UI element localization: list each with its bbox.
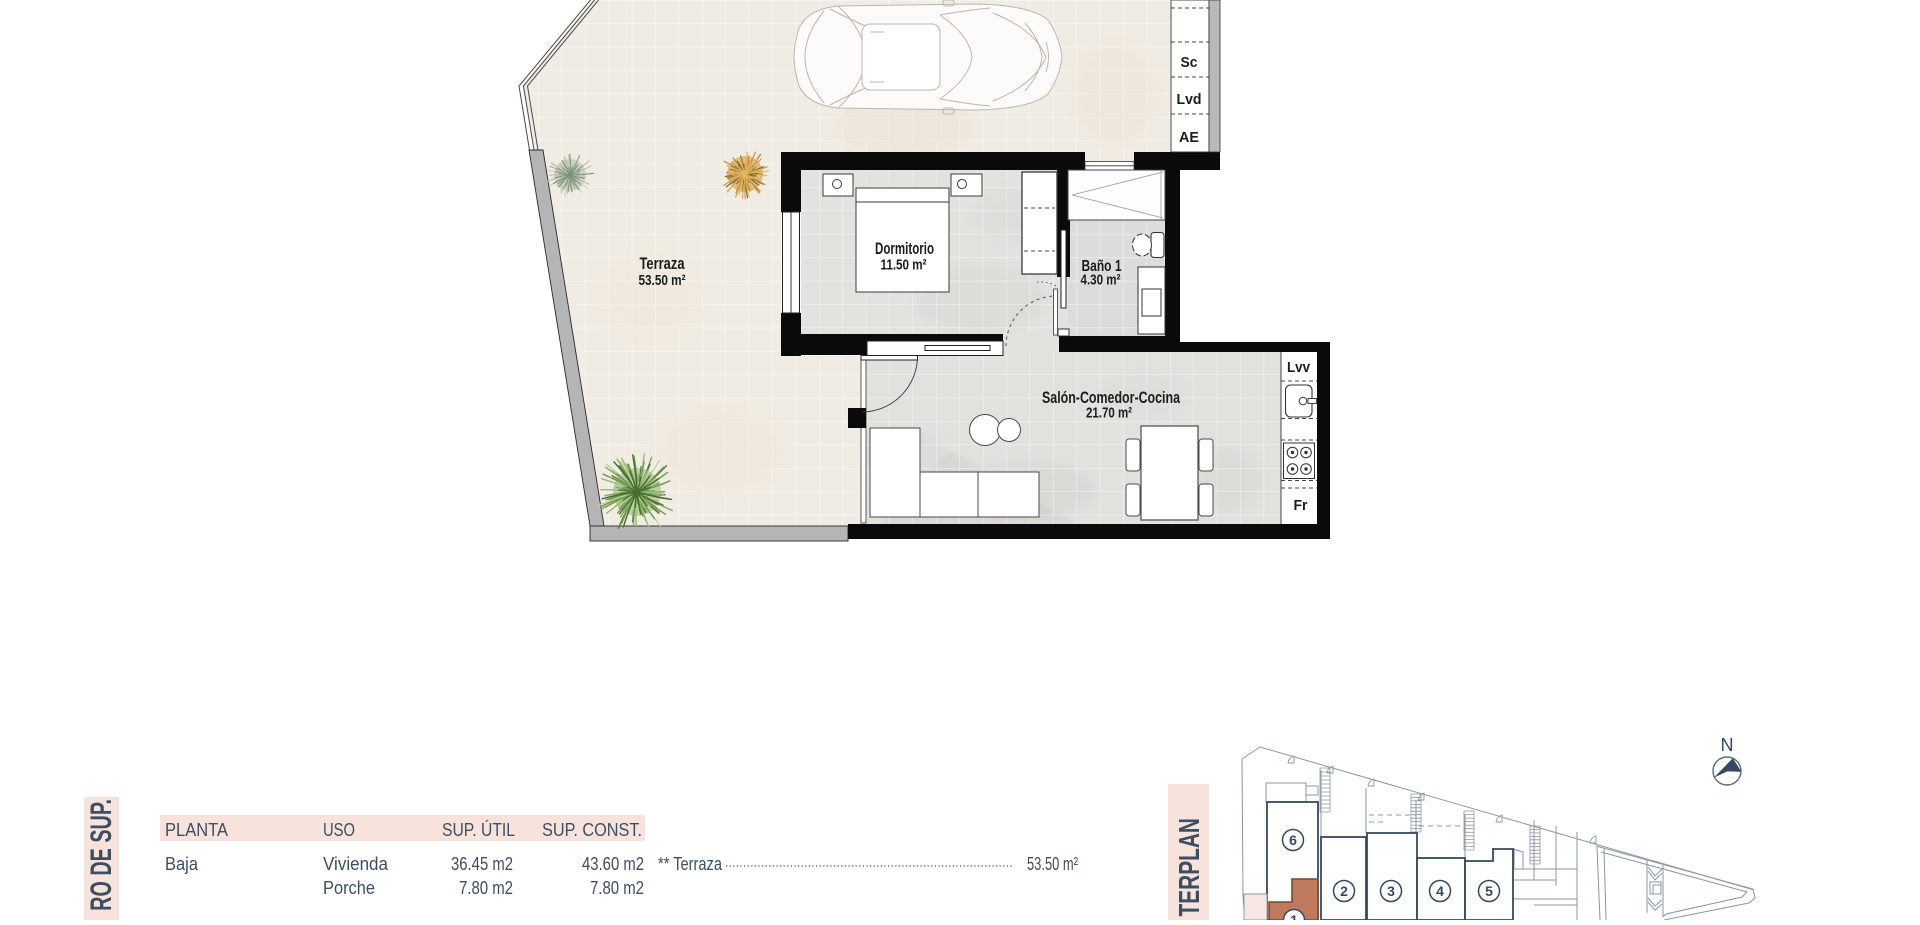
svg-text:4.30 m²: 4.30 m² bbox=[1081, 272, 1121, 289]
svg-text:AE: AE bbox=[1179, 129, 1199, 146]
svg-text:Lvv: Lvv bbox=[1287, 359, 1311, 376]
svg-text:4: 4 bbox=[1436, 883, 1444, 899]
svg-text:Sc: Sc bbox=[1181, 54, 1198, 71]
svg-text:6: 6 bbox=[1289, 832, 1297, 848]
svg-text:Porche: Porche bbox=[323, 877, 375, 898]
svg-text:11.50 m²: 11.50 m² bbox=[881, 257, 927, 274]
svg-text:3: 3 bbox=[1387, 883, 1395, 899]
svg-text:53.50 m²: 53.50 m² bbox=[639, 272, 686, 289]
svg-text:Terraza: Terraza bbox=[640, 254, 685, 273]
svg-text:5: 5 bbox=[1485, 883, 1493, 899]
svg-text:21.70 m²: 21.70 m² bbox=[1086, 405, 1132, 422]
svg-text:** Terraza: ** Terraza bbox=[658, 853, 723, 874]
svg-text:Dormitorio: Dormitorio bbox=[875, 240, 934, 258]
svg-text:36.45 m2: 36.45 m2 bbox=[451, 853, 513, 874]
svg-text:N: N bbox=[1721, 735, 1734, 755]
svg-text:Baja: Baja bbox=[165, 853, 199, 874]
svg-text:43.60 m2: 43.60 m2 bbox=[582, 853, 644, 874]
svg-text:Vivienda: Vivienda bbox=[323, 853, 389, 874]
svg-text:SUP. ÚTIL: SUP. ÚTIL bbox=[442, 819, 515, 840]
svg-text:53.50 m²: 53.50 m² bbox=[1027, 853, 1078, 874]
svg-text:1: 1 bbox=[1290, 912, 1298, 920]
svg-text:7.80 m2: 7.80 m2 bbox=[590, 877, 644, 898]
svg-text:2: 2 bbox=[1340, 883, 1348, 899]
svg-text:Lvd: Lvd bbox=[1177, 91, 1202, 108]
svg-text:PLANTA: PLANTA bbox=[165, 819, 229, 840]
svg-text:TERPLAN: TERPLAN bbox=[1174, 818, 1206, 917]
svg-text:RO DE SUP.: RO DE SUP. bbox=[85, 799, 118, 911]
svg-text:USO: USO bbox=[323, 819, 355, 840]
svg-text:7.80 m2: 7.80 m2 bbox=[459, 877, 513, 898]
svg-text:SUP. CONST.: SUP. CONST. bbox=[542, 819, 642, 840]
svg-text:Fr: Fr bbox=[1294, 497, 1308, 514]
